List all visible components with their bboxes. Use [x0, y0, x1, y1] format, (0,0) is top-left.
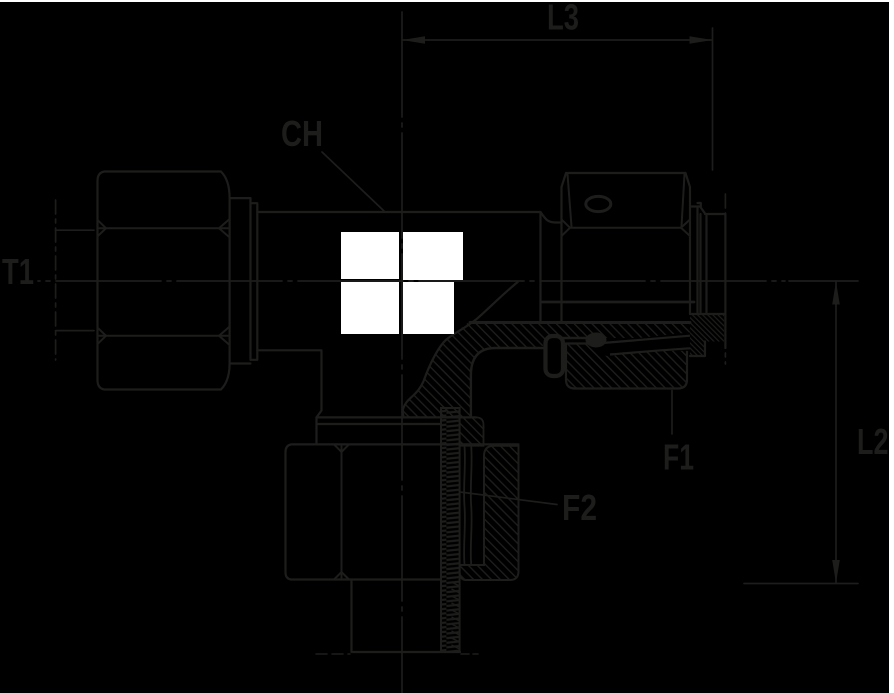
svg-text:CH: CH [281, 113, 323, 154]
svg-text:L2: L2 [857, 421, 889, 462]
svg-text:F1: F1 [663, 437, 694, 478]
svg-text:T1: T1 [2, 251, 34, 292]
svg-text:L3: L3 [547, 0, 579, 38]
svg-text:F2: F2 [562, 487, 597, 528]
